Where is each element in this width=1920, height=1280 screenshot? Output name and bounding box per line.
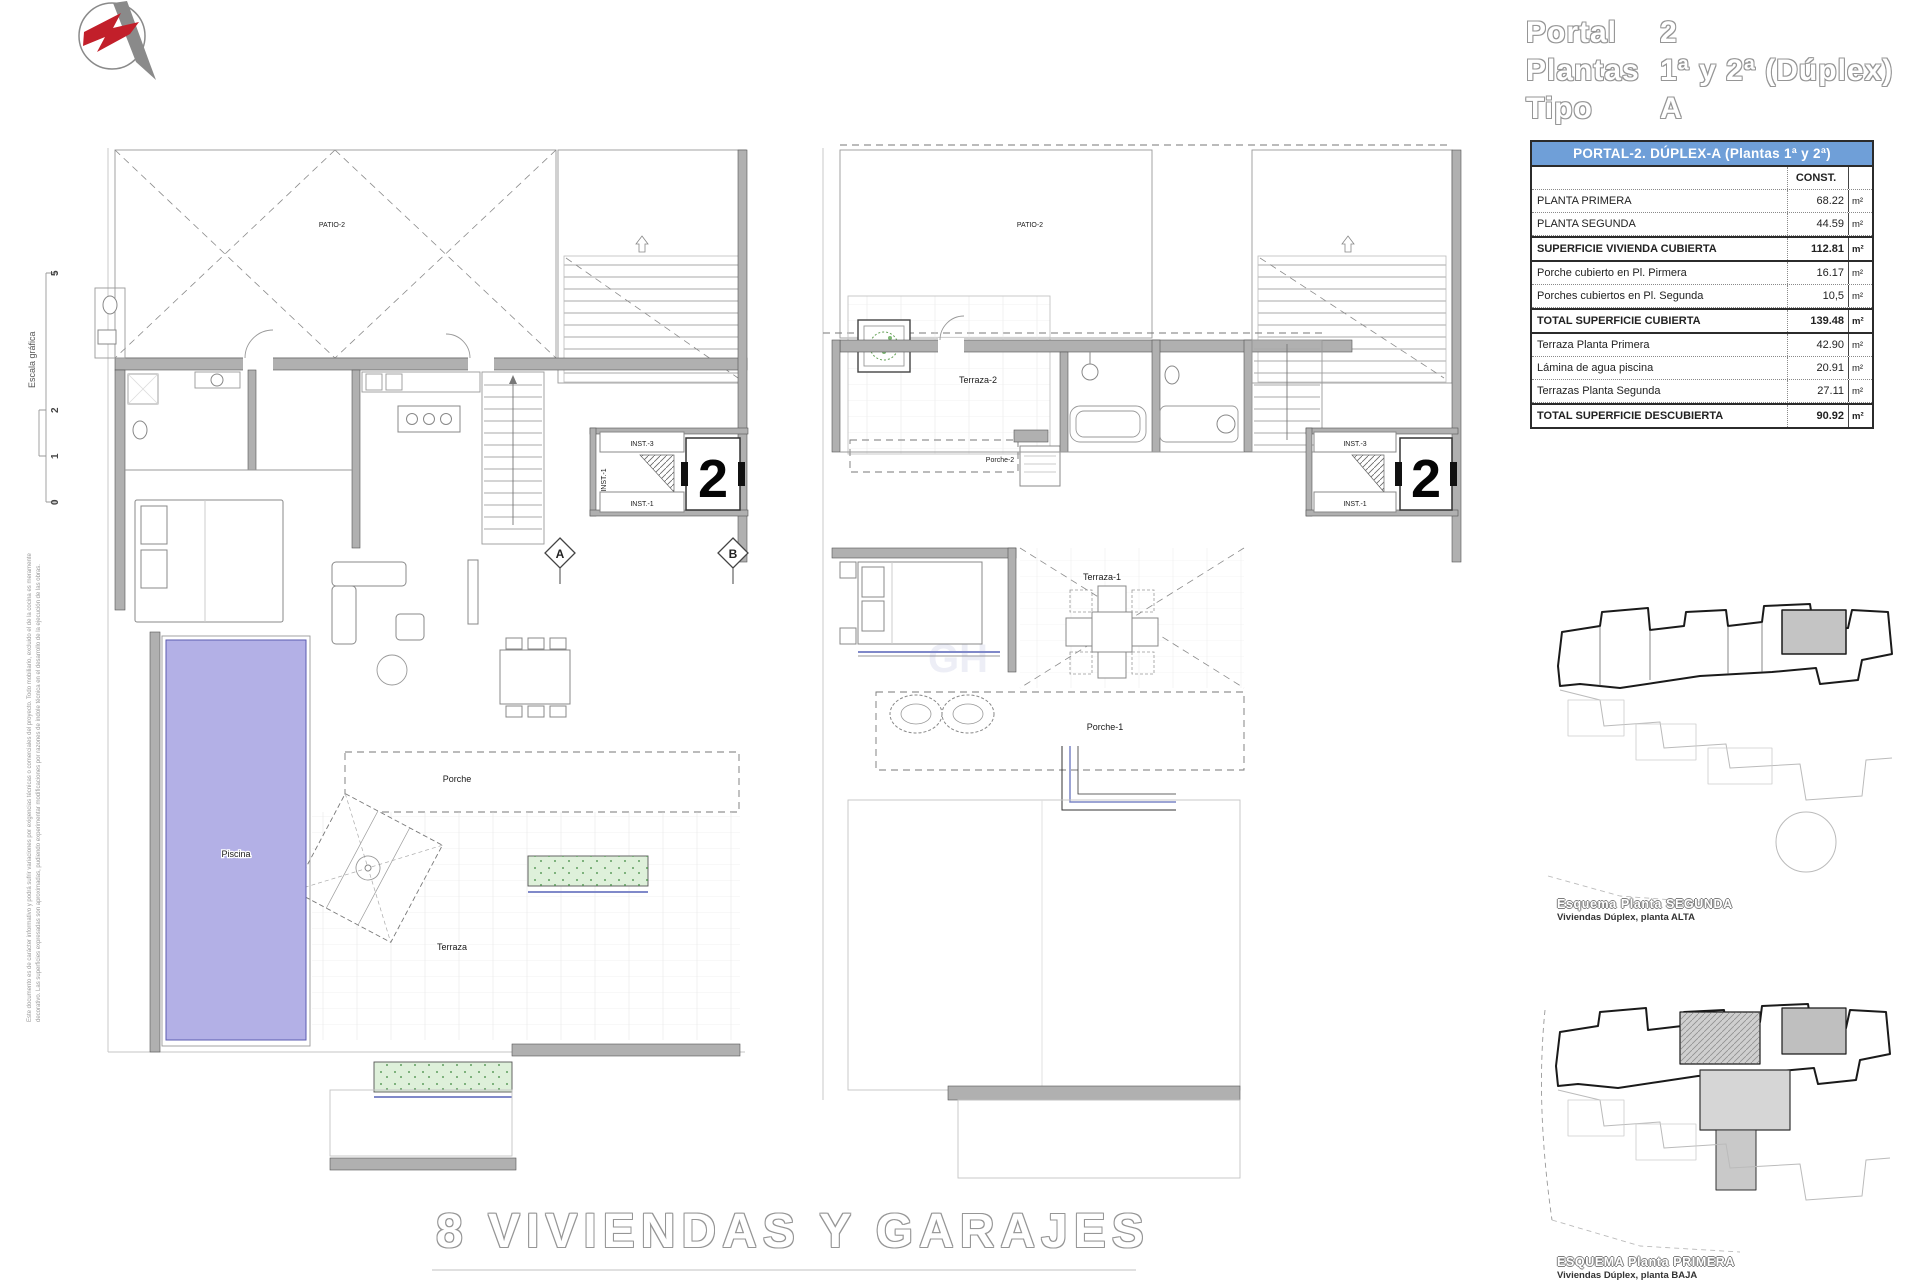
table-header-row: CONST.	[1532, 167, 1872, 190]
stair-arrow-icon	[636, 236, 648, 252]
terrace-label-left: Terraza	[437, 942, 467, 952]
portal-value: 2	[1660, 14, 1678, 52]
table-row-total: TOTAL SUPERFICIE CUBIERTA139.48m²	[1532, 308, 1872, 334]
table-row: Porches cubiertos en Pl. Segunda10,5m²	[1532, 285, 1872, 308]
inst3-label-left: INST.-3	[630, 441, 653, 448]
const-column-header: CONST.	[1788, 167, 1849, 189]
inst1-side-label-left: INST.-1	[601, 468, 608, 491]
table-row: Lámina de agua piscina20.91m²	[1532, 357, 1872, 380]
inst1-label-right: INST.-1	[1343, 501, 1366, 508]
stair-arrow-icon	[1342, 236, 1354, 252]
tipo-label: Tipo	[1526, 90, 1660, 128]
scale-bar-label: Escala gráfica	[27, 331, 37, 388]
table-row-total: SUPERFICIE VIVIENDA CUBIERTA112.81m²	[1532, 236, 1872, 262]
table-row: PLANTA SEGUNDA44.59m²	[1532, 213, 1872, 236]
company-logo	[79, 1, 156, 80]
tipo-value: A	[1660, 90, 1683, 128]
porch1-label: Porche-1	[1087, 722, 1124, 732]
scale-tick-1: 1	[50, 453, 61, 459]
patio-label-left: PATIO-2	[319, 222, 345, 229]
svg-text:A: A	[556, 547, 565, 561]
unit-number-right: 2	[1411, 449, 1441, 509]
site-diagram-lower	[1541, 1004, 1890, 1252]
table-title: PORTAL-2. DÚPLEX-A (Plantas 1ª y 2ª)	[1532, 142, 1872, 167]
porch-label-left: Porche	[443, 774, 472, 784]
area-table: PORTAL-2. DÚPLEX-A (Plantas 1ª y 2ª) CON…	[1530, 140, 1874, 429]
dining-table	[500, 650, 570, 704]
site-caption-upper-subtitle: Viviendas Dúplex, planta ALTA	[1557, 912, 1733, 923]
section-marker-a: A	[545, 538, 575, 584]
inst1-label-left: INST.-1	[630, 501, 653, 508]
table-row: PLANTA PRIMERA68.22m²	[1532, 190, 1872, 213]
table-row-total: TOTAL SUPERFICIE DESCUBIERTA90.92m²	[1532, 403, 1872, 427]
site-caption-upper-title: Esquema Planta SEGUNDA	[1557, 897, 1733, 911]
porch2-label: Porche-2	[986, 457, 1015, 464]
scale-tick-2: 2	[50, 407, 61, 413]
terrace1-label: Terraza-1	[1083, 572, 1121, 582]
site-caption-lower-title: ESQUEMA Planta PRIMERA	[1557, 1255, 1735, 1269]
site-caption-lower-subtitle: Viviendas Dúplex, planta BAJA	[1557, 1270, 1735, 1280]
disclaimer-line2: decorativo. Las superficies expresadas s…	[35, 522, 44, 1022]
patio-label-right: PATIO-2	[1017, 222, 1043, 229]
floor-plan-left: PATIO-2	[95, 148, 748, 1170]
planter	[374, 1062, 512, 1097]
pool	[166, 640, 306, 1040]
inst3-label-right: INST.-3	[1343, 441, 1366, 448]
watermark: GH	[928, 637, 988, 681]
pool-label: Piscina	[221, 849, 250, 859]
site-caption-lower: ESQUEMA Planta PRIMERA Viviendas Dúplex,…	[1557, 1255, 1735, 1280]
disclaimer-line1: Este documento es de carácter informativ…	[26, 522, 35, 1022]
table-row: Terraza Planta Primera42.90m²	[1532, 334, 1872, 357]
terrace2-label: Terraza-2	[959, 375, 997, 385]
table-row: Porche cubierto en Pl. Pirmera16.17m²	[1532, 262, 1872, 285]
scale-tick-5: 5	[50, 270, 61, 276]
sofa	[332, 562, 406, 586]
sheet: 5 2 1 0 Escala gráfica PATIO-2	[0, 0, 1920, 1280]
disclaimer-text: Este documento es de carácter informativ…	[26, 522, 44, 1022]
site-diagram-upper	[1548, 604, 1892, 902]
table-row: Terrazas Planta Segunda27.11m²	[1532, 380, 1872, 403]
floor-plan-right: PATIO-2 Terraza-2 Porche-2	[823, 145, 1461, 1178]
plantas-value: 1ª y 2ª (Dúplex)	[1660, 52, 1893, 90]
title-block: Portal2 Plantas1ª y 2ª (Dúplex) TipoA	[1526, 14, 1893, 128]
scale-bar: 5 2 1 0 Escala gráfica	[27, 270, 61, 505]
portal-label: Portal	[1526, 14, 1660, 52]
site-caption-upper: Esquema Planta SEGUNDA Viviendas Dúplex,…	[1557, 897, 1733, 923]
sheet-title: 8 VIVIENDAS Y GARAJES	[436, 1204, 1150, 1259]
plantas-label: Plantas	[1526, 52, 1660, 90]
unit-number-left: 2	[698, 449, 728, 509]
svg-text:B: B	[729, 547, 738, 561]
scale-tick-0: 0	[50, 499, 61, 505]
